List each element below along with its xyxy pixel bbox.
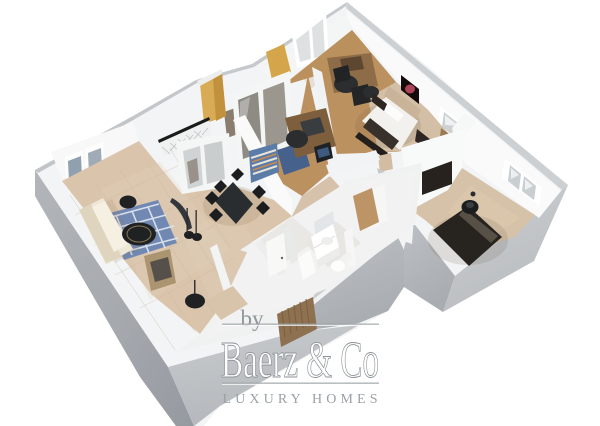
svg-text:by: by bbox=[241, 306, 265, 331]
svg-text:Baerz & Co: Baerz & Co bbox=[221, 332, 379, 389]
